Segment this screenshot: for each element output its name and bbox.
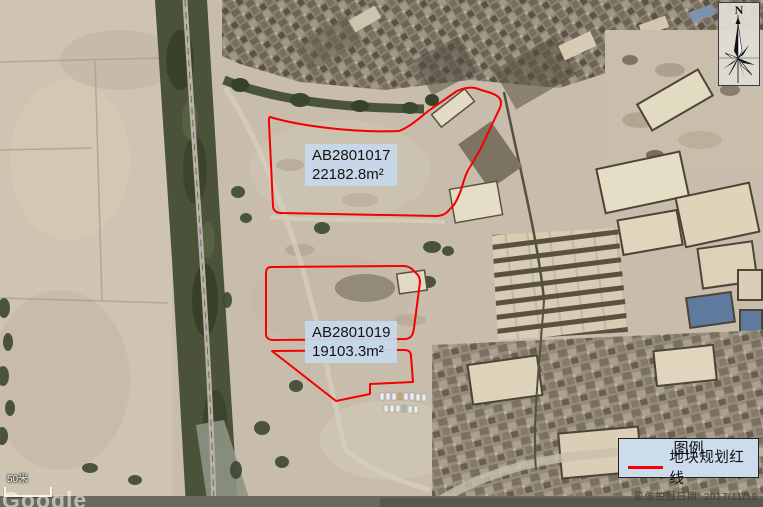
legend-item: 地块规划红线 [619,458,758,476]
parcel-code: AB2801019 [312,323,390,342]
parcel-area: 22182.8m² [312,165,390,184]
parcel-code: AB2801017 [312,146,390,165]
warehouse-rows-mid [492,228,628,340]
imagery-provider-watermark: Google [2,487,87,507]
compass-rose: N [718,2,760,86]
red-line-symbol [628,466,663,469]
compass-needle-icon [719,3,759,85]
parcel-area: 19103.3m² [312,342,390,361]
parcel-label-AB2801017: AB2801017 22182.8m² [305,144,397,186]
scale-bar-label: 50米 [7,475,52,485]
satellite-imagery [0,0,763,507]
map-viewport[interactable]: AB2801017 22182.8m² AB2801019 19103.3m² … [0,0,763,507]
legend: 图例 地块规划红线 [618,438,759,478]
legend-item-label: 地块规划红线 [669,446,758,488]
imagery-date-watermark: 影像拍摄日期: 2017/11/18 [634,488,758,503]
parcel-label-AB2801019: AB2801019 19103.3m² [305,321,397,363]
